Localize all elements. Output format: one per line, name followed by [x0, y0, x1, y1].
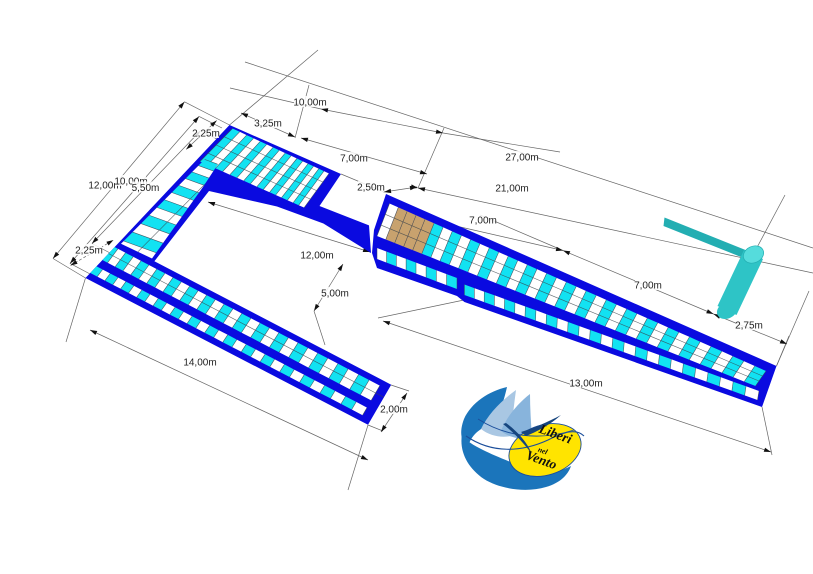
svg-text:13,00m: 13,00m [569, 379, 602, 390]
svg-text:2,75m: 2,75m [735, 321, 763, 332]
svg-text:21,00m: 21,00m [495, 184, 528, 195]
svg-text:2,00m: 2,00m [380, 405, 408, 416]
svg-text:5,00m: 5,00m [321, 289, 349, 300]
svg-text:5,50m: 5,50m [132, 183, 160, 194]
svg-text:12,00m: 12,00m [300, 251, 333, 262]
svg-text:10,00m: 10,00m [293, 98, 326, 109]
svg-text:3,25m: 3,25m [254, 119, 282, 130]
svg-text:27,00m: 27,00m [505, 153, 538, 164]
svg-text:2,50m: 2,50m [357, 183, 385, 194]
svg-text:2,25m: 2,25m [75, 246, 103, 257]
svg-text:7,00m: 7,00m [469, 216, 497, 227]
svg-text:2,25m: 2,25m [192, 129, 220, 140]
svg-text:7,00m: 7,00m [634, 281, 662, 292]
svg-text:7,00m: 7,00m [340, 154, 368, 165]
svg-text:14,00m: 14,00m [183, 358, 216, 369]
